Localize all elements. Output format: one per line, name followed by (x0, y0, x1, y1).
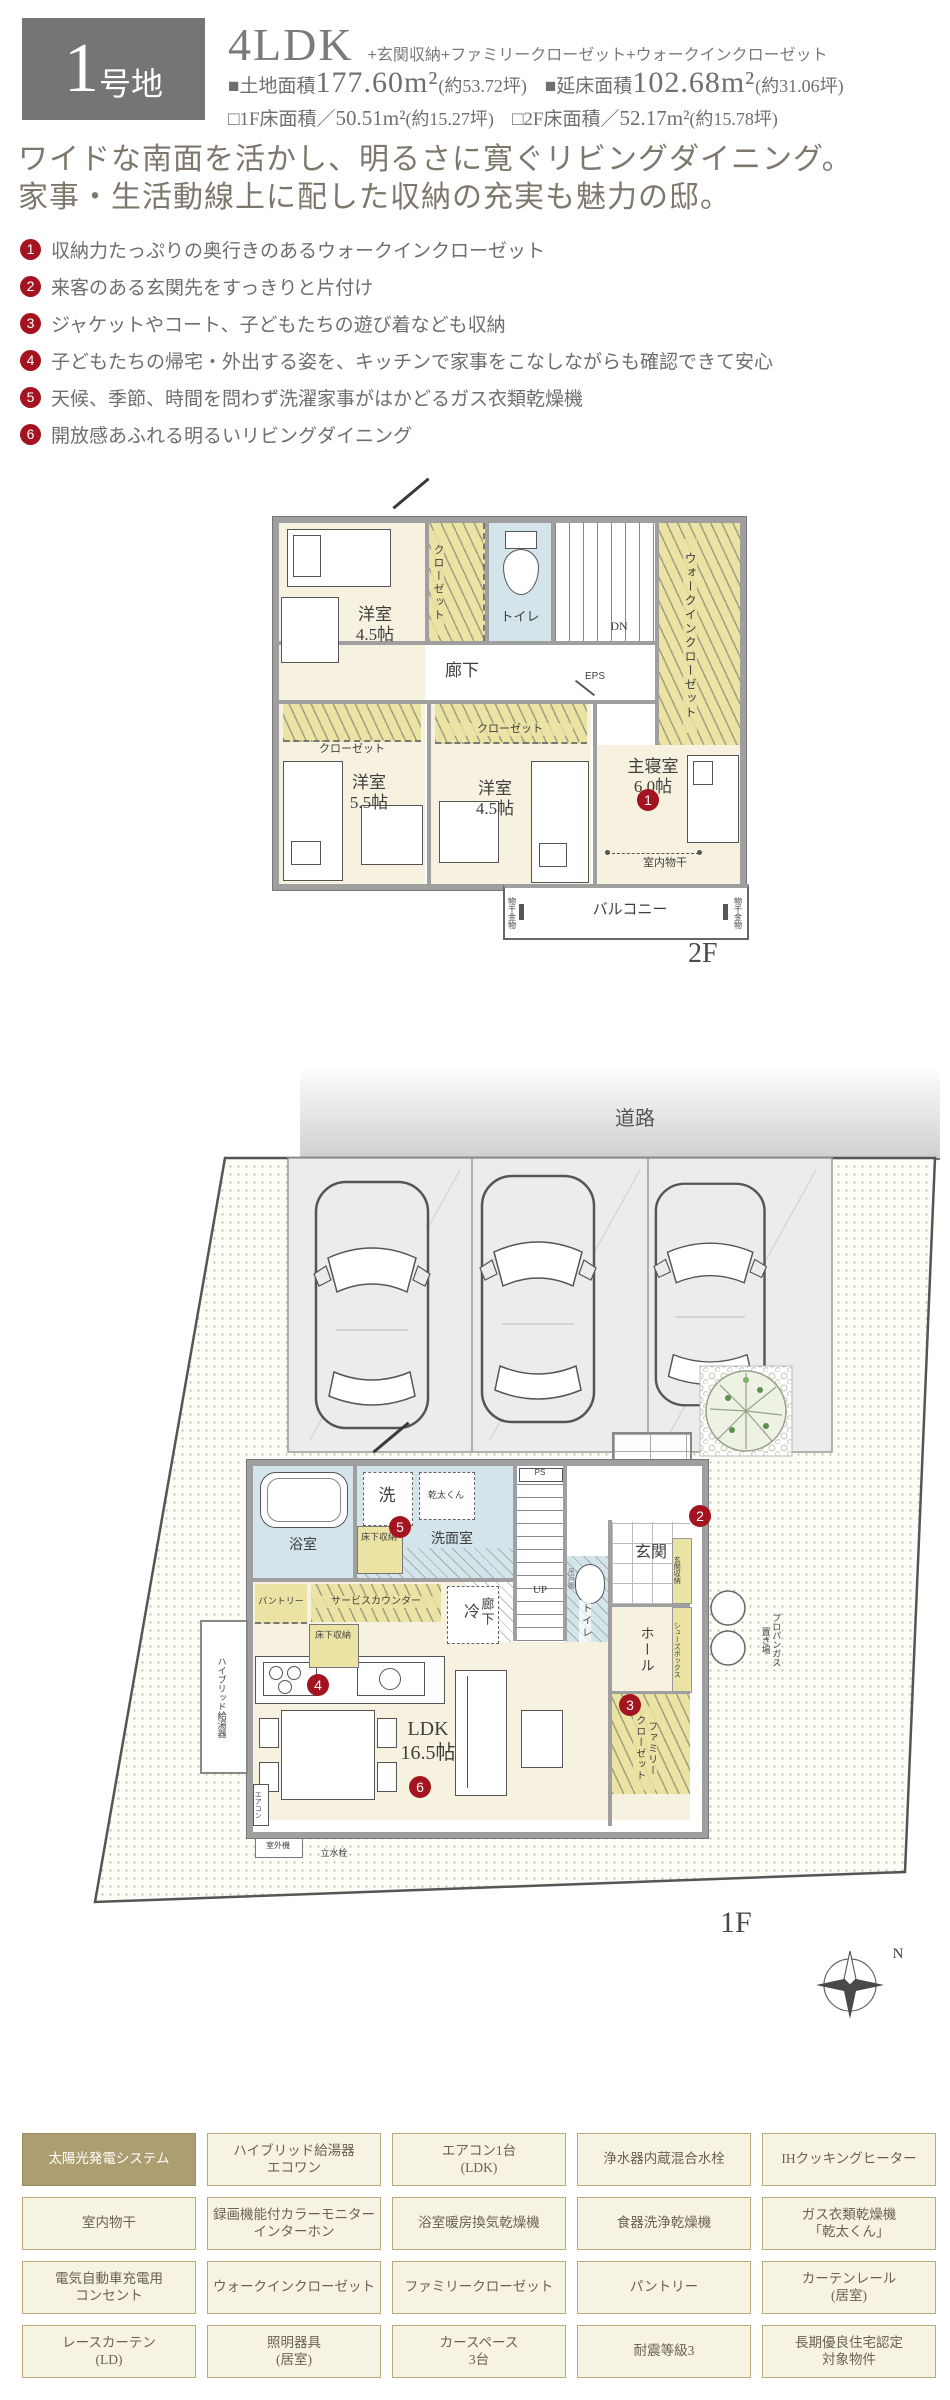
toilet-tank (505, 531, 537, 549)
equipment-cell: IHクッキングヒーター (762, 2133, 936, 2186)
underfloor-storage-b-label: 床下収納 (311, 1630, 355, 1641)
genkan-storage-label: 玄関収納 (673, 1540, 681, 1600)
burner (278, 1680, 292, 1694)
feature-5-text: 天候、季節、時間を問わず洗濯家事がはかどるガス衣類乾燥機 (51, 384, 583, 411)
equipment-cell-solar: 太陽光発電システム (22, 2133, 196, 2186)
burner (269, 1666, 283, 1680)
gas-dryer-label: 乾太くん (419, 1490, 473, 1501)
dining-table (281, 1710, 375, 1800)
lot-number: 1 (64, 34, 99, 104)
catchphrase-line2: 家事・生活動線上に配した収納の充実も魅力の邸。 (18, 180, 731, 216)
feature-1-text: 収納力たっぷりの奥行きのあるウォークインクローゼット (51, 236, 545, 263)
feature-6-text: 開放感あふれる明るいリビングダイニング (51, 421, 412, 448)
feature-1-badge: 1 (20, 239, 41, 260)
total-floor-value: 102.68m² (632, 66, 755, 100)
area-row-2: □1F床面積／ 50.51m² (約15.27坪) □2F床面積／ 52.17m… (228, 104, 778, 131)
indoor-drying-bar (607, 853, 699, 854)
balcony-label: バルコニー (575, 902, 685, 920)
compass-north-label: N (888, 1946, 908, 1964)
room-label: 洋室 4.5帖 (447, 779, 543, 819)
feature-item: 4 子どもたちの帰宅・外出する姿を、キッチンで家事をこなしながらも確認できて安心 (20, 347, 773, 374)
toilet-bowl (575, 1564, 605, 1604)
shoes-box-label: シューズボックス (673, 1609, 681, 1691)
stairs-down-label: DN (597, 619, 641, 633)
bathtub-inner (267, 1478, 341, 1522)
desk (361, 805, 423, 865)
equipment-cell: パントリー (577, 2261, 751, 2314)
equipment-cell: 照明器具 (居室) (207, 2325, 381, 2378)
service-counter-label: サービスカウンター (311, 1596, 441, 1608)
land-area-label: ■土地面積 (228, 71, 315, 98)
land-area-tsubo: (約53.72坪) (438, 72, 527, 98)
land-area-value: 177.60m² (315, 66, 438, 100)
closet-label: クローゼット (289, 743, 415, 756)
equipment-cell: 録画機能付カラーモニター インターホン (207, 2197, 381, 2250)
chair (259, 1718, 279, 1748)
feature-item: 5 天候、季節、時間を問わず洗濯家事がはかどるガス衣類乾燥機 (20, 384, 583, 411)
marker-4: 4 (307, 1674, 329, 1696)
floorplan-1f: 浴室 洗 乾太くん 洗面室 床下収納 PS UP 廊下 トイレ 吊戸棚 玄関 玄… (247, 1460, 708, 1838)
marker-5: 5 (389, 1516, 411, 1538)
equipment-cell: 室内物干 (22, 2197, 196, 2250)
equipment-cell: 長期優良住宅認定 対象物件 (762, 2325, 936, 2378)
equipment-cell: ウォークインクローゼット (207, 2261, 381, 2314)
f1-area-value: 50.51m² (336, 106, 406, 131)
total-floor-label: ■延床面積 (545, 71, 632, 98)
balcony: バルコニー 物干金物 物干金物 (503, 884, 749, 940)
feature-item: 2 来客のある玄関先をすっきりと片付け (20, 273, 373, 300)
toilet-label: トイレ (491, 609, 549, 624)
closet-label: クローゼット (447, 723, 573, 736)
f2-area-value: 52.17m² (619, 106, 689, 131)
marker-6: 6 (409, 1776, 431, 1798)
feature-3-text: ジャケットやコート、子どもたちの遊び着なども収納 (51, 310, 506, 337)
bath-label: 浴室 (275, 1538, 331, 1555)
tree-icon (706, 1371, 786, 1451)
pillow (539, 843, 567, 867)
plan-title-row: 4LDK +玄関収納+ファミリークローゼット+ウォークインクローゼット (228, 18, 828, 71)
tap-label: 立水栓 (312, 1848, 356, 1859)
marker-3: 3 (619, 1694, 641, 1716)
toilet-1f-label: トイレ (579, 1600, 591, 1642)
equipment-cell: 浴室暖房換気乾燥機 (392, 2197, 566, 2250)
f1-area-tsubo: (約15.27坪) (405, 105, 494, 131)
closet-2f-b (283, 704, 421, 742)
propane-label: プロパンガス 置き場 (760, 1585, 781, 1695)
coffee-table (521, 1710, 563, 1768)
ldk-label: LDK 16.5帖 (373, 1718, 483, 1765)
pantry-label: パントリー (255, 1596, 307, 1607)
car-1 (314, 1182, 430, 1428)
burner (287, 1666, 301, 1680)
compass-icon (816, 1951, 884, 2019)
chair (377, 1762, 397, 1792)
equipment-cell: ハイブリッド給湯器 エコワン (207, 2133, 381, 2186)
equipment-cell: 食器洗浄乾燥機 (577, 2197, 751, 2250)
hanging-cupboard-label: 吊戸棚 (567, 1558, 575, 1598)
feature-3-badge: 3 (20, 313, 41, 334)
wic-label: ウォークインクローゼット (683, 539, 697, 733)
marker-1: 1 (637, 789, 659, 811)
equipment-cell: エアコン1台 (LDK) (392, 2133, 566, 2186)
floor-label-1f: 1F (720, 1906, 752, 1940)
road-label: 道路 (600, 1108, 670, 1132)
f2-area-tsubo: (約15.78坪) (689, 105, 778, 131)
feature-5-badge: 5 (20, 387, 41, 408)
eps-label: EPS (575, 671, 615, 683)
room-label: 洋室 4.5帖 (327, 605, 423, 645)
hallway-2f-label: 廊下 (427, 661, 497, 681)
room-label: 洋室 5.5帖 (321, 773, 417, 813)
feature-4-text: 子どもたちの帰宅・外出する姿を、キッチンで家事をこなしながらも確認できて安心 (51, 347, 773, 374)
equipment-cell: ガス衣類乾燥機 「乾太くん」 (762, 2197, 936, 2250)
feature-item: 3 ジャケットやコート、子どもたちの遊び着なども収納 (20, 310, 506, 337)
drying-hardware-label-right: 物干金物 (733, 890, 742, 936)
plan-type: 4LDK (228, 18, 354, 71)
lot-number-suffix: 号地 (99, 59, 163, 105)
feature-4-badge: 4 (20, 350, 41, 371)
washer-label: 洗 (363, 1486, 411, 1506)
flyer-page: 1 号地 4LDK +玄関収納+ファミリークローゼット+ウォークインクローゼット… (0, 0, 950, 2400)
equipment-cell: 浄水器内蔵混合水栓 (577, 2133, 751, 2186)
plan-suffix: +玄関収納+ファミリークローゼット+ウォークインクローゼット (368, 41, 828, 65)
floor-label-2f: 2F (688, 938, 718, 970)
hall-label: ホール (637, 1614, 654, 1686)
feature-item: 1 収納力たっぷりの奥行きのあるウォークインクローゼット (20, 236, 545, 263)
closet-label: クローゼット (431, 531, 444, 635)
hybrid-boiler-label: ハイブリッド給湯器 (216, 1628, 227, 1766)
feature-item: 6 開放感あふれる明るいリビングダイニング (20, 421, 412, 448)
hybrid-boiler: ハイブリッド給湯器 (200, 1620, 248, 1774)
equipment-cell: 電気自動車充電用 コンセント (22, 2261, 196, 2314)
walk-in-closet-2f (659, 523, 740, 745)
pillow (293, 535, 321, 577)
f2-area-label: □2F床面積／ (512, 104, 620, 131)
aircon-label: エアコン (254, 1786, 262, 1824)
car-2 (480, 1176, 596, 1422)
feature-6-badge: 6 (20, 424, 41, 445)
pillow (291, 841, 321, 865)
stairs-1f (517, 1482, 563, 1641)
total-floor-tsubo: (約31.06坪) (755, 72, 844, 98)
equipment-cell: レースカーテン (LD) (22, 2325, 196, 2378)
roof-vent-mark-2f (392, 478, 429, 510)
equipment-cell: カーテンレール (居室) (762, 2261, 936, 2314)
ps-label: PS (519, 1468, 561, 1477)
equipment-cell: ファミリークローゼット (392, 2261, 566, 2314)
floorplan-2f: 洋室 4.5帖 クローゼット トイレ DN ウォークインクローゼット 廊下 EP… (273, 517, 746, 890)
genkan-label: 玄関 (625, 1544, 677, 1563)
stairs-up-label: UP (521, 1584, 559, 1597)
fridge-label: 冷 (447, 1604, 497, 1623)
washroom-label: 洗面室 (409, 1532, 495, 1549)
outdoor-unit-label: 室外機 (258, 1841, 298, 1850)
ldk-nook (612, 1794, 690, 1820)
drying-hardware-label-left: 物干金物 (507, 890, 516, 936)
family-closet-label: ファミリー クローゼット (633, 1706, 657, 1790)
lot-number-box: 1 号地 (22, 18, 205, 120)
feature-2-badge: 2 (20, 276, 41, 297)
marker-2: 2 (689, 1505, 711, 1527)
f1-area-label: □1F床面積／ (228, 104, 336, 131)
equipment-cell: カースペース 3台 (392, 2325, 566, 2378)
equipment-cell: 耐震等級3 (577, 2325, 751, 2378)
feature-2-text: 来客のある玄関先をすっきりと片付け (51, 273, 373, 300)
faucet (379, 1668, 401, 1690)
catchphrase-line1: ワイドな南面を活かし、明るさに寛ぐリビングダイニング。 (18, 142, 853, 178)
outdoor-unit: 室外機 (255, 1838, 303, 1858)
indoor-drying-label: 室内物干 (625, 857, 705, 870)
area-row-1: ■土地面積 177.60m² (約53.72坪) ■延床面積 102.68m² … (228, 66, 844, 100)
